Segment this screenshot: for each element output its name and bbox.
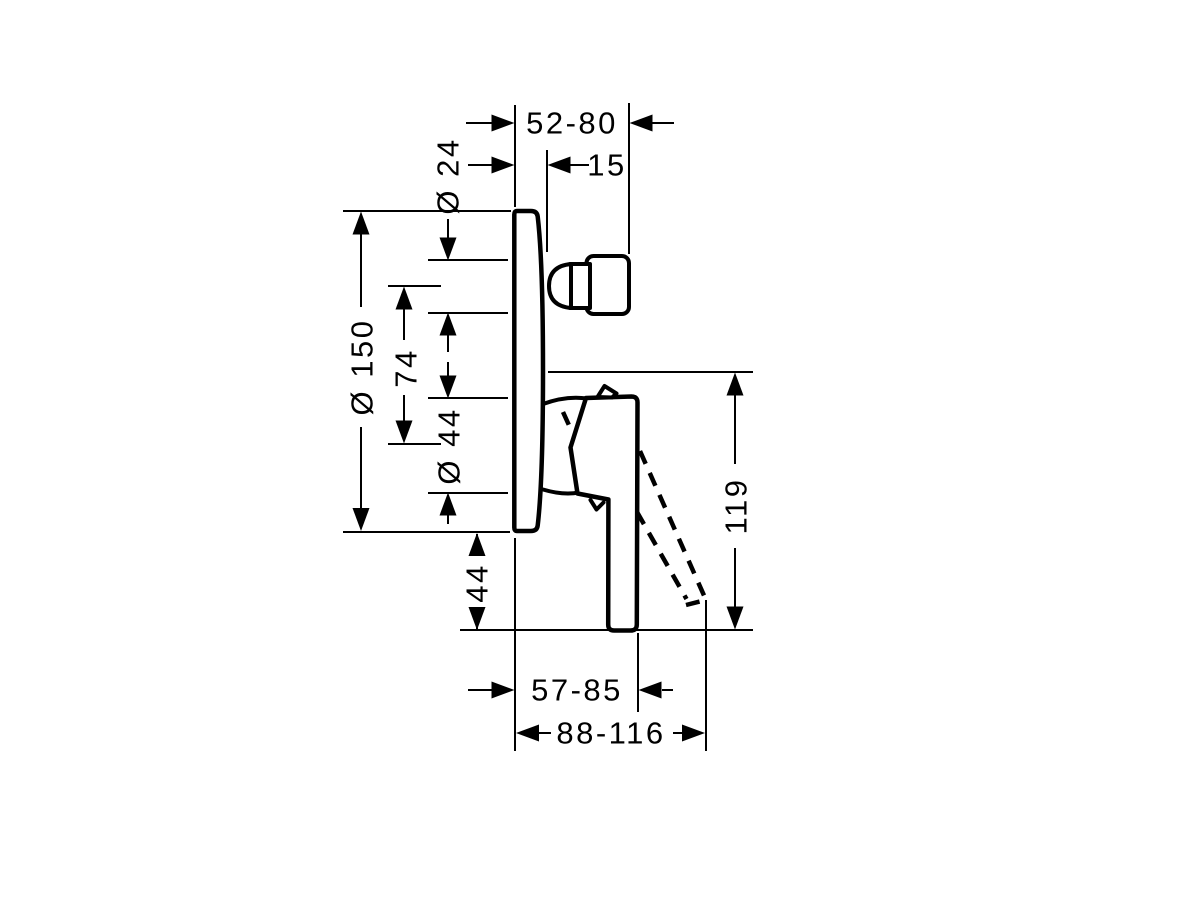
lever-top-tab [598, 386, 617, 398]
arrowhead-right [492, 157, 515, 174]
arrowhead-up [440, 313, 457, 336]
dim-wall-to-swung-lever: 88-116 [516, 716, 705, 751]
arrowhead-up [440, 493, 457, 516]
swung-lever-end-cap [686, 600, 708, 606]
arrowhead-down [440, 238, 457, 261]
escutcheon-plate [514, 211, 543, 531]
dim-label-wall-to-grip: 57-85 [531, 673, 623, 708]
dim-label-centers-distance: 74 [389, 348, 424, 387]
arrowhead-down [353, 508, 370, 531]
dim-label-stop-valve-diameter: Ø 24 [431, 137, 466, 214]
arrowhead-left [639, 682, 662, 699]
arrowhead-left [548, 157, 571, 174]
lever-swung-position [637, 451, 708, 605]
stop-valve-cap [549, 264, 571, 308]
dim-escutcheon-diameter: Ø 150 [345, 212, 380, 532]
arrowhead-left [630, 115, 653, 132]
hidden-edge-dash [563, 412, 573, 433]
stop-valve-body [587, 256, 630, 314]
dim-label-wall-to-sleeve: 15 [587, 148, 626, 183]
dim-sleeve-diameter: Ø 44 [432, 362, 467, 524]
dim-lever-span: 119 [719, 373, 754, 630]
arrowhead-right [492, 115, 515, 132]
product-outline [514, 211, 707, 631]
dim-label-lever-span: 119 [719, 478, 754, 535]
cartridge-sleeve-bottom [543, 490, 579, 494]
dim-label-wall-to-stop-valve: 52-80 [526, 106, 618, 141]
dim-label-below-plate: 44 [460, 563, 495, 602]
drawing-canvas: Ø 150 74 Ø 24 Ø 44 44 119 [0, 0, 1200, 901]
dim-stop-valve-diameter: Ø 24 [431, 137, 466, 352]
arrowhead-up [469, 533, 486, 556]
arrowhead-down [396, 421, 413, 444]
arrowhead-down [440, 376, 457, 399]
arrowhead-up [727, 373, 744, 396]
arrowhead-down [469, 607, 486, 630]
dim-label-wall-to-swung-lever: 88-116 [556, 716, 665, 751]
swung-lever-edge-left [637, 512, 687, 599]
arrowhead-up [396, 287, 413, 310]
dim-wall-to-stop-valve: 52-80 [466, 106, 674, 141]
dim-below-plate: 44 [460, 533, 495, 630]
lever-handle [571, 397, 638, 631]
technical-drawing: Ø 150 74 Ø 24 Ø 44 44 119 [0, 0, 1200, 901]
cartridge-sleeve-top [543, 398, 587, 404]
arrowhead-down [727, 607, 744, 630]
arrowhead-left [516, 725, 539, 742]
dim-centers-distance: 74 [389, 287, 424, 444]
dim-label-sleeve-diameter: Ø 44 [432, 407, 467, 484]
arrowhead-right [492, 682, 515, 699]
arrowhead-right [682, 725, 705, 742]
lever-bottom-notch [591, 500, 604, 510]
dim-label-escutcheon-diameter: Ø 150 [345, 319, 380, 416]
arrowhead-up [353, 212, 370, 235]
dim-wall-to-grip: 57-85 [468, 673, 673, 708]
